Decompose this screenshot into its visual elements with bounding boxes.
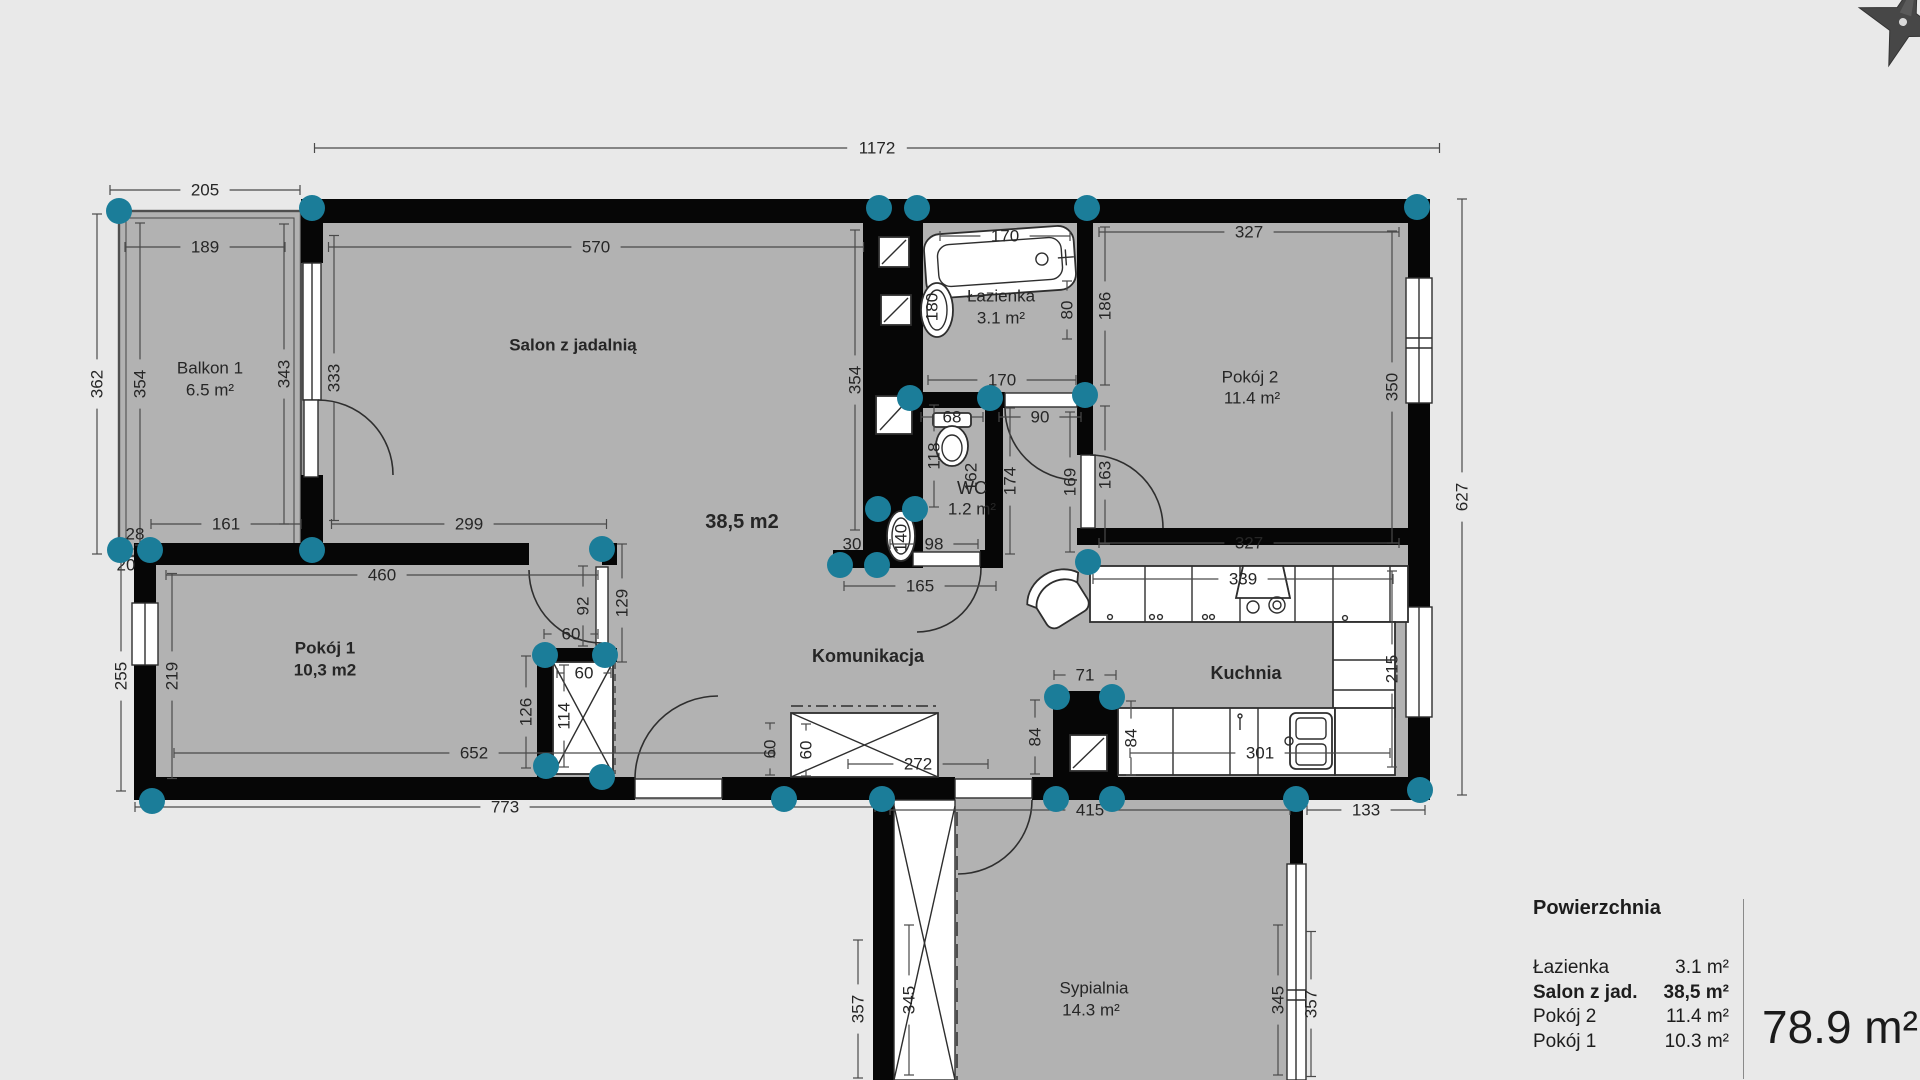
corner-handle[interactable] [904,195,930,221]
dimension-label: 140 [892,524,911,552]
corner-handle[interactable] [532,642,558,668]
dimension: 773 [135,798,875,817]
window-kuchnia [1406,607,1432,717]
dimension-label: 133 [1352,801,1380,820]
dimension-label: 60 [797,741,816,760]
dimension: 357 [849,940,868,1078]
legend-row: Pokój 211.4 m² [1533,1005,1729,1030]
dimension: 255 [112,561,131,791]
dimension: 30 [843,535,862,554]
legend-row: Łazienka3.1 m² [1533,956,1729,981]
dimension-label: 163 [1096,461,1115,489]
window-sypialnia-left-glazing [894,800,957,1080]
corner-handle[interactable] [771,786,797,812]
dimension-label: 652 [460,744,488,763]
room-label-balkon-name: Balkon 1 [177,359,243,378]
room-label-pokoj2-name: Pokój 2 [1222,368,1279,387]
floor-pokoj1-ext [134,543,301,800]
floorplan-canvas: 2051891172570170327362354343333354180801… [0,0,1920,1080]
legend-rows: Łazienka3.1 m²Salon z jad.38,5 m²Pokój 2… [1533,956,1729,1054]
corner-handle[interactable] [869,786,895,812]
dimension-label: 255 [112,662,131,690]
dimension-label: 189 [191,238,219,257]
room-label-lazienka-name: Łazienka [967,287,1036,306]
dimension-label: 333 [325,364,344,392]
dimension-label: 272 [904,755,932,774]
window-pokoj1 [132,603,158,665]
dimension: 140 [892,524,911,552]
dimension-label: 165 [906,577,934,596]
dimension-label: 362 [88,370,107,398]
dimension-label: 773 [491,798,519,817]
legend-divider [1743,899,1744,1079]
dimension-label: 301 [1246,744,1274,763]
room-label-pokoj1-area: 10,3 m2 [294,661,356,680]
room-label-wc-name: WC [957,478,987,498]
legend-row-value: 10.3 m² [1665,1030,1729,1055]
dimension-label: 205 [191,181,219,200]
dimension-label: 327 [1235,534,1263,553]
corner-handle[interactable] [902,496,928,522]
shaft-duct-icon [879,237,909,267]
room-label-pokoj1-name: Pokój 1 [295,639,355,658]
dimension-label: 1172 [859,139,896,158]
dimension-label: 174 [1001,467,1020,495]
dimension-label: 357 [849,995,868,1023]
dimension-label: 219 [163,662,182,690]
room-label-pokoj2-area: 11.4 m² [1224,389,1281,408]
room-label-wc-area: 1.2 m² [948,500,997,519]
corner-handle[interactable] [827,552,853,578]
dimension-label: 60 [562,625,581,644]
dimension-label: 118 [925,442,944,469]
legend-title: Powierzchnia [1533,897,1729,920]
dimension-label: 92 [574,597,593,616]
dimension-label: 30 [843,535,862,554]
legend-row-label: Łazienka [1533,956,1609,981]
dimension-label: 299 [455,515,483,534]
dimension-label: 98 [925,535,944,554]
legend-row-label: Salon z jad. [1533,981,1638,1006]
window-pokoj2 [1406,278,1432,403]
legend-row: Salon z jad.38,5 m² [1533,981,1729,1006]
corner-handle[interactable] [864,552,890,578]
dimension-label: 126 [517,698,536,726]
dimension-label: 180 [923,293,942,321]
legend-row-value: 11.4 m² [1666,1005,1729,1030]
room-label-kuchnia-name: Kuchnia [1210,663,1282,683]
dimension-label: 345 [900,986,919,1014]
compass-star-icon [1845,0,1920,80]
dimension-label: 345 [1269,986,1288,1014]
room-label-salon-name: Salon z jadalnią [509,336,637,355]
room-label-komunikacja-name: Komunikacja [812,646,925,666]
dimension: 133 [1307,801,1425,820]
corner-handle[interactable] [1074,195,1100,221]
corner-handle[interactable] [137,537,163,563]
dimension-label: 84 [1122,729,1141,748]
corner-handle[interactable] [589,536,615,562]
corner-handle[interactable] [139,788,165,814]
corner-handle[interactable] [1099,684,1125,710]
dimension-label: 215 [1383,655,1402,683]
legend-row-value: 38,5 m² [1664,981,1729,1006]
legend-row-value: 3.1 m² [1675,956,1729,981]
room-label-sypialnia-area: 14.3 m² [1062,1001,1120,1020]
shaft-duct-icon [1070,735,1107,771]
legend-row-label: Pokój 2 [1533,1005,1596,1030]
corner-handle[interactable] [1099,786,1125,812]
dimension-label: 570 [582,238,610,257]
legend-row: Pokój 110.3 m² [1533,1030,1729,1055]
dimension-label: 114 [555,702,574,729]
total-area: 78.9 m² [1762,1000,1918,1054]
dimension-label: 169 [1061,468,1080,496]
window-sypialnia-right [1287,864,1306,1080]
corner-handle[interactable] [1283,786,1309,812]
corner-handle[interactable] [592,642,618,668]
dimension-label: 80 [1058,301,1077,320]
shaft-duct-icon [881,295,911,325]
window-balkon-salon [303,263,321,400]
room-label-sypialnia-name: Sypialnia [1060,979,1130,998]
dimension-label: 357 [1302,990,1321,1018]
dimension-label: 129 [613,589,632,617]
dimension-label: 327 [1235,223,1263,242]
dimension-label: 339 [1229,570,1257,589]
corner-handle[interactable] [589,764,615,790]
area-legend: Powierzchnia Łazienka3.1 m²Salon z jad.3… [1533,897,1729,1054]
corner-handle[interactable] [1075,549,1101,575]
corner-handle[interactable] [866,195,892,221]
dimension: 180 [923,293,942,321]
kitchen-counter-bottom [1118,708,1395,775]
corner-handle[interactable] [1072,382,1098,408]
dimension-label: 186 [1096,292,1115,320]
dimension-label: 90 [1031,408,1050,427]
dimension-label: 354 [131,370,150,398]
corner-handle[interactable] [897,385,923,411]
dimension: 1172 [315,139,1440,158]
dimension-label: 60 [761,740,780,759]
dimension-label: 68 [943,408,962,427]
dimension-label: 71 [1076,666,1095,685]
corner-handle[interactable] [865,496,891,522]
corner-handle[interactable] [1407,777,1433,803]
dimension-label: 350 [1383,373,1402,401]
corner-handle[interactable] [1044,684,1070,710]
dimension: 362 [88,214,107,554]
dimension-label: 161 [212,515,240,534]
corner-handle[interactable] [299,537,325,563]
dimension-label: 60 [575,664,594,683]
corner-handle[interactable] [1043,786,1069,812]
dimension-label: 354 [846,366,865,394]
dimension: 205 [110,181,300,200]
legend-row-label: Pokój 1 [1533,1030,1596,1055]
room-label-salon-area: 38,5 m2 [705,511,778,533]
corner-handle[interactable] [106,198,132,224]
kitchen-sink-icon [1285,713,1332,769]
room-label-balkon-area: 6.5 m² [186,381,235,400]
dimension: 627 [1453,199,1472,795]
dimension-label: 460 [368,566,396,585]
corner-handle[interactable] [299,195,325,221]
dimension-label: 170 [991,227,1019,246]
corner-handle[interactable] [107,537,133,563]
dimension-label: 627 [1453,483,1472,511]
corner-handle[interactable] [533,753,559,779]
corner-handle[interactable] [977,385,1003,411]
dimension-label: 84 [1026,728,1045,747]
room-label-lazienka-area: 3.1 m² [977,309,1026,328]
corner-handle[interactable] [1404,194,1430,220]
dimension-label: 343 [275,360,294,388]
